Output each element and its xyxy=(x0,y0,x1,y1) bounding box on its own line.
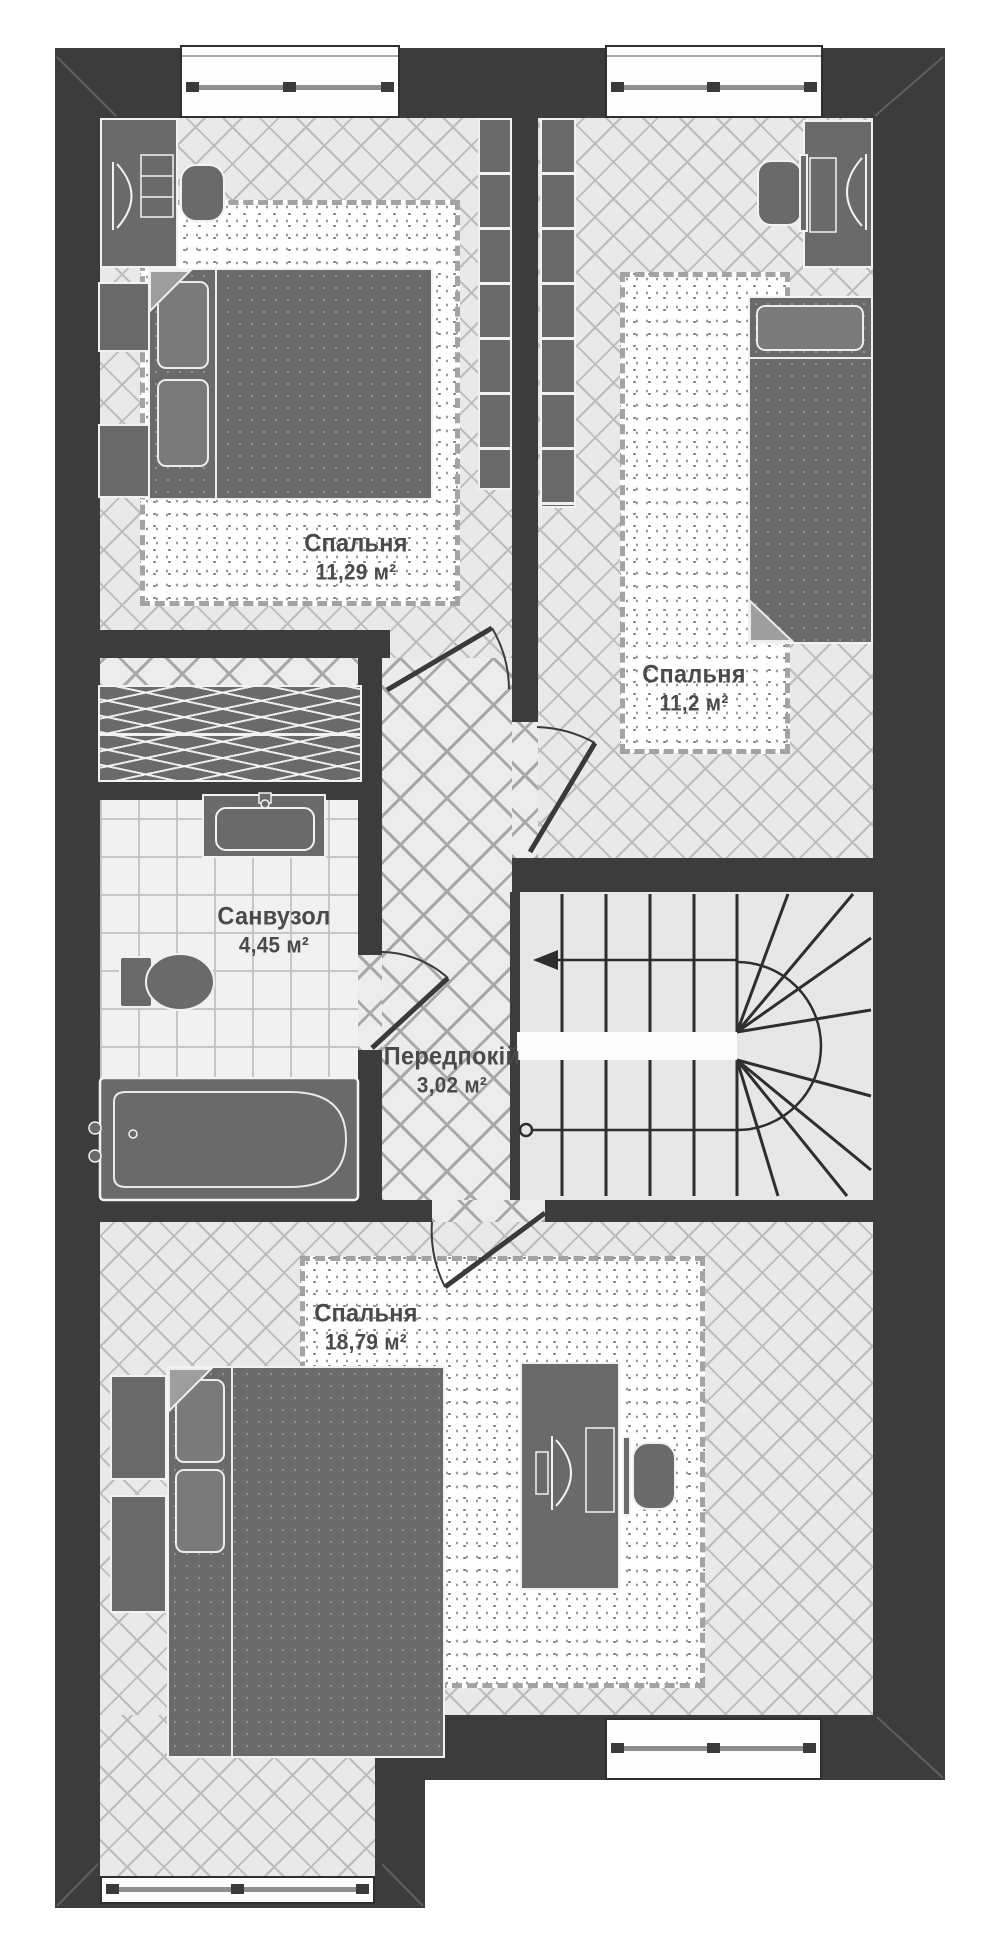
room-area: 11,29 м² xyxy=(304,559,408,585)
bedroom-1-stool xyxy=(180,164,225,222)
room-name: Передпокій xyxy=(384,1042,520,1072)
bedroom-2-chair-backrest xyxy=(799,154,808,232)
room-label-bedroom-3: Спальня 18,79 м² xyxy=(314,1299,418,1354)
bedroom-3-nightstand xyxy=(110,1495,167,1613)
wall-bedroom1-bottom xyxy=(100,630,390,658)
wall-bathroom-top xyxy=(100,782,358,800)
bedroom-2-bed xyxy=(748,296,873,644)
bedroom-2-shelving-unit xyxy=(540,118,576,508)
stairwell-floor xyxy=(517,892,873,1200)
window-mullion xyxy=(707,1743,720,1753)
room-area: 18,79 м² xyxy=(314,1329,418,1355)
room-area: 3,02 м² xyxy=(384,1072,520,1098)
window-mullion xyxy=(381,82,394,92)
bedroom-1-nightstand xyxy=(98,424,150,498)
bedroom-1-vanity xyxy=(100,118,178,268)
room-label-bedroom-1: Спальня 11,29 м² xyxy=(304,529,408,584)
room-area: 4,45 м² xyxy=(217,932,330,958)
wall-left xyxy=(55,55,100,1908)
bedroom-3-nightstand xyxy=(110,1375,167,1480)
room-label-bathroom: Санвузол 4,45 м² xyxy=(217,902,330,957)
window-mullion xyxy=(186,82,199,92)
window-mullion xyxy=(231,1884,244,1894)
room-name: Санвузол xyxy=(217,902,330,932)
window-mullion xyxy=(707,82,720,92)
window-top-right xyxy=(605,45,823,118)
room-name: Спальня xyxy=(642,660,746,690)
bedroom-1-shelving-unit xyxy=(478,118,512,490)
window-mullion xyxy=(611,1743,624,1753)
window-mullion xyxy=(803,1743,816,1753)
window-mullion xyxy=(611,82,624,92)
wall-bedroom1-bedroom2 xyxy=(512,118,538,722)
window-mullion xyxy=(356,1884,369,1894)
window-sill xyxy=(607,55,821,57)
window-mullion xyxy=(804,82,817,92)
window-frame-bar xyxy=(611,1746,816,1751)
window-bottom-right xyxy=(605,1718,822,1780)
bedroom-1-bed xyxy=(148,268,433,500)
window-mullion xyxy=(283,82,296,92)
bathroom-floor xyxy=(100,800,358,1200)
hallway-floor xyxy=(382,658,512,1202)
bedroom-2-office-chair xyxy=(757,160,802,226)
doorway-bedroom-2 xyxy=(512,722,538,858)
room-label-bedroom-2: Спальня 11,2 м² xyxy=(642,660,746,715)
bedroom-2-desk xyxy=(803,120,873,268)
room-name: Спальня xyxy=(314,1299,418,1329)
doorway-bedroom-3 xyxy=(432,1200,545,1222)
closet-nook-floor xyxy=(100,658,358,687)
closet-wardrobe xyxy=(98,685,362,782)
floor-plan: Спальня 11,29 м² Спальня 11,2 м² Санвузо… xyxy=(0,0,999,1953)
bedroom-3-bed xyxy=(167,1366,445,1758)
window-frame-bar xyxy=(186,85,394,90)
room-area: 11,2 м² xyxy=(642,690,746,716)
room-label-hallway: Передпокій 3,02 м² xyxy=(384,1042,520,1097)
doorway-bathroom xyxy=(358,955,382,1050)
window-frame-bar xyxy=(611,85,817,90)
wall-stairs-top xyxy=(512,858,873,892)
window-bottom-left xyxy=(100,1876,375,1904)
bedroom-1-nightstand xyxy=(98,282,150,352)
room-name: Спальня xyxy=(304,529,408,559)
bedroom-3-desk xyxy=(520,1362,620,1590)
window-frame-bar xyxy=(106,1887,369,1892)
wardrobe-shelf-line xyxy=(100,733,360,736)
window-sill xyxy=(182,55,398,57)
window-top-left xyxy=(180,45,400,118)
window-mullion xyxy=(106,1884,119,1894)
wall-right xyxy=(873,55,945,1780)
bedroom-3-chair-backrest xyxy=(622,1436,631,1516)
bedroom-3-office-chair xyxy=(632,1442,676,1510)
